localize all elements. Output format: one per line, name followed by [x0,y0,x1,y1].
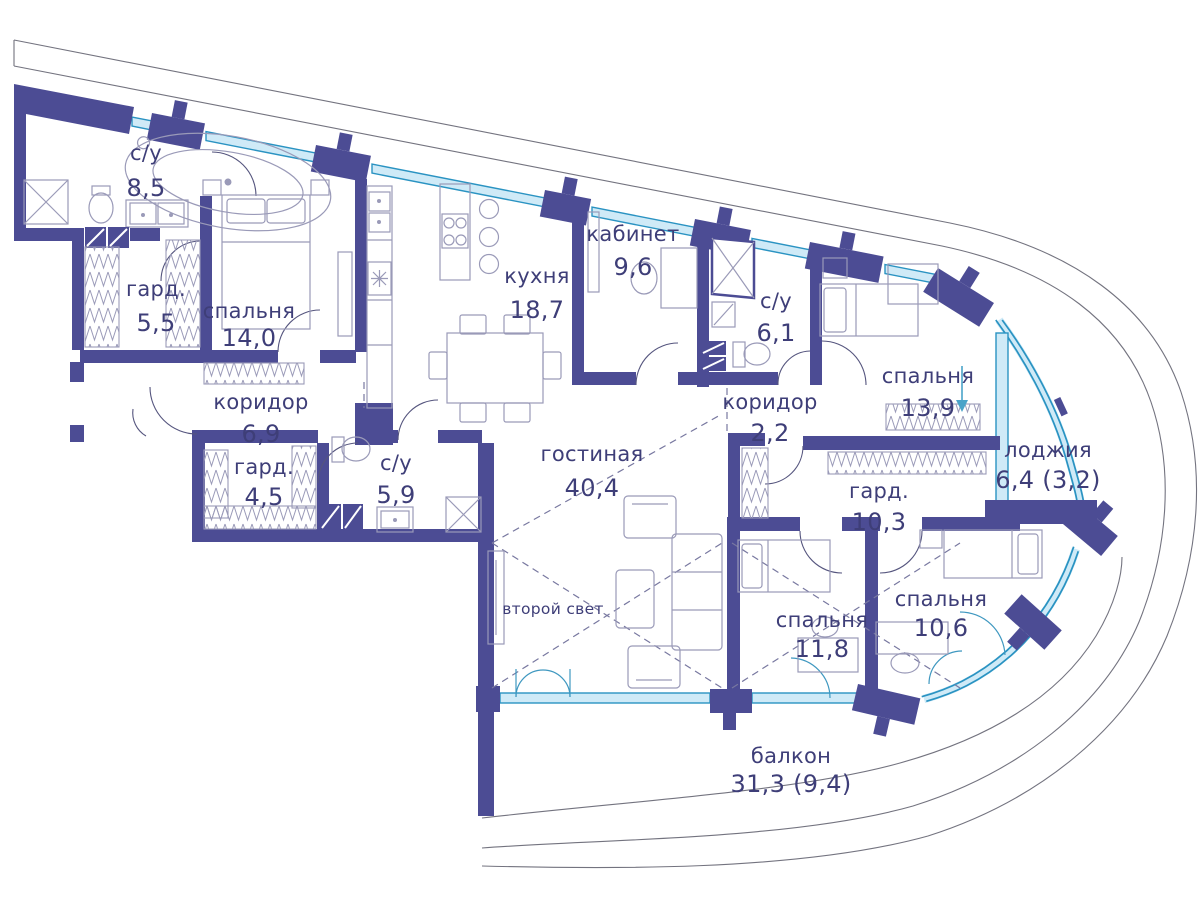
svg-text:коридор: коридор [722,390,817,414]
second-light-label: второй свет [502,600,604,618]
svg-text:кухня: кухня [504,264,569,288]
room-label-wardrobe-3: гард. 10,3 [849,479,909,536]
room-label-bedroom-1: спальня 14,0 [203,299,295,352]
washing-machine [320,504,363,530]
corner-wall [14,84,134,234]
svg-text:18,7: 18,7 [510,296,565,324]
svg-text:11,8: 11,8 [795,635,850,663]
refrigerator-icon [368,262,391,295]
wash-basin [377,507,413,532]
floor-plan: с/у 8,5 гард. 5,5 спальня 14,0 кухня 18,… [0,0,1200,902]
room-label-study: кабинет 9,6 [586,222,679,281]
svg-text:с/у: с/у [380,451,412,475]
svg-text:6,4 (3,2): 6,4 (3,2) [995,466,1100,494]
svg-text:гард.: гард. [234,455,294,479]
coffee-table [616,570,654,628]
svg-text:гард.: гард. [126,277,186,301]
svg-text:2,2: 2,2 [750,419,789,447]
island-cooktop [440,184,470,280]
wash-basin [89,186,113,223]
bar-stools [480,200,499,274]
double-vanity [126,200,188,227]
shower-cabin [446,497,481,532]
room-label-balcony: балкон 31,3 (9,4) [731,744,852,798]
svg-text:лоджия: лоджия [1004,438,1092,462]
dining-table [429,315,561,422]
room-label-bedroom-3: спальня 11,8 [776,608,868,663]
sofa [672,534,722,650]
kitchen-counter [367,186,392,408]
svg-text:гостиная: гостиная [541,442,644,466]
svg-text:31,3 (9,4): 31,3 (9,4) [731,770,852,798]
wardrobe-rack [742,448,768,518]
room-label-bathroom-2: с/у 6,1 [756,289,795,347]
room-label-bathroom-1: с/у 8,5 [126,141,165,202]
svg-text:спальня: спальня [203,299,295,323]
wardrobe-rack [292,446,316,508]
svg-text:6,9: 6,9 [241,420,280,448]
svg-text:9,6: 9,6 [613,253,652,281]
shower-cabin [24,180,68,224]
svg-text:балкон: балкон [751,744,831,768]
svg-text:40,4: 40,4 [565,474,620,502]
svg-text:14,0: 14,0 [222,324,277,352]
room-label-wardrobe-2: гард. 4,5 [234,455,294,511]
svg-text:4,5: 4,5 [244,483,283,511]
svg-text:5,5: 5,5 [136,309,175,337]
wardrobe-rack [85,247,119,347]
svg-text:кабинет: кабинет [586,222,679,246]
ventilation-shaft [712,238,754,298]
floor-plan-page: с/у 8,5 гард. 5,5 спальня 14,0 кухня 18,… [0,0,1200,902]
svg-text:10,6: 10,6 [914,614,969,642]
svg-text:гард.: гард. [849,479,909,503]
svg-text:спальня: спальня [882,364,974,388]
room-label-loggia: лоджия 6,4 (3,2) [995,438,1100,494]
wardrobe-rack [204,363,304,384]
svg-text:с/у: с/у [130,141,162,165]
svg-text:коридор: коридор [213,390,308,414]
svg-text:10,3: 10,3 [852,508,907,536]
svg-text:6,1: 6,1 [756,319,795,347]
svg-text:13,9: 13,9 [901,394,956,422]
svg-text:спальня: спальня [776,608,868,632]
svg-text:с/у: с/у [760,289,792,313]
svg-text:5,9: 5,9 [376,481,415,509]
room-label-kitchen: кухня 18,7 [504,264,569,324]
room-label-bathroom-3: с/у 5,9 [376,451,415,509]
room-label-living-room: гостиная 40,4 [541,442,644,502]
svg-text:8,5: 8,5 [126,174,165,202]
wardrobe-rack [828,452,986,474]
washing-machine [85,227,129,248]
svg-text:спальня: спальня [895,587,987,611]
